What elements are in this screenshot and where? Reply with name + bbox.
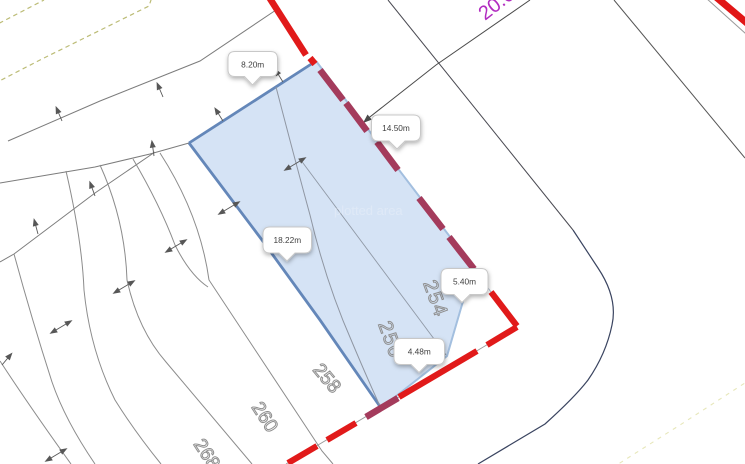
- svg-text:4.48m: 4.48m: [408, 347, 431, 357]
- svg-text:plotted area: plotted area: [334, 203, 403, 218]
- svg-text:18.22m: 18.22m: [273, 235, 301, 245]
- svg-text:8.20m: 8.20m: [241, 59, 264, 69]
- svg-text:14.50m: 14.50m: [382, 123, 410, 133]
- svg-text:5.40m: 5.40m: [453, 277, 476, 287]
